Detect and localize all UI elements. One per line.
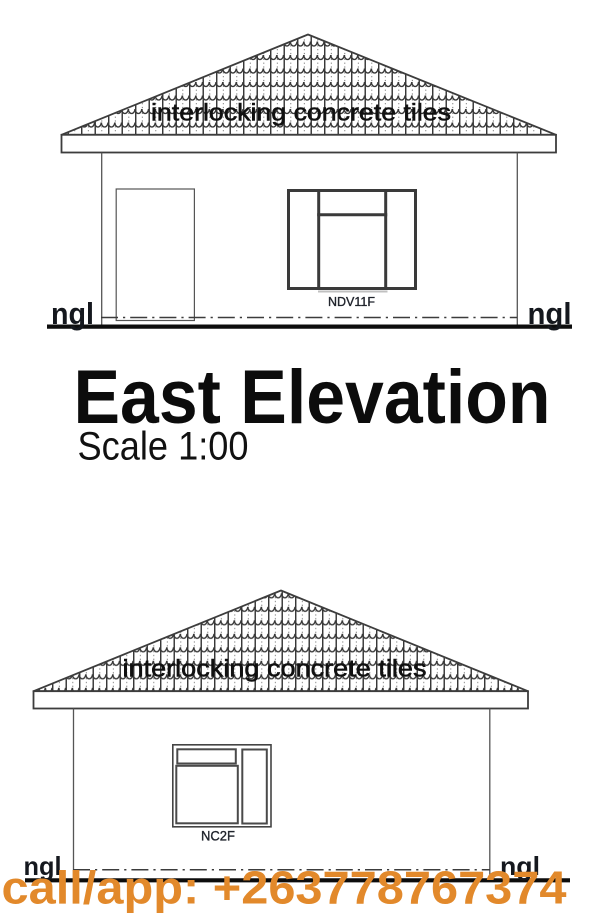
svg-text:NC2F: NC2F — [201, 828, 235, 844]
svg-text:NDV11F: NDV11F — [328, 294, 375, 309]
svg-text:interlocking concrete tiles: interlocking concrete tiles — [123, 656, 427, 683]
svg-text:ngl: ngl — [528, 296, 572, 331]
svg-text:interlocking concrete tiles: interlocking concrete tiles — [151, 100, 451, 127]
svg-text:call/app: +263778767374: call/app: +263778767374 — [2, 862, 567, 914]
svg-text:Scale 1:00: Scale 1:00 — [78, 425, 249, 469]
svg-text:ngl: ngl — [51, 296, 94, 331]
